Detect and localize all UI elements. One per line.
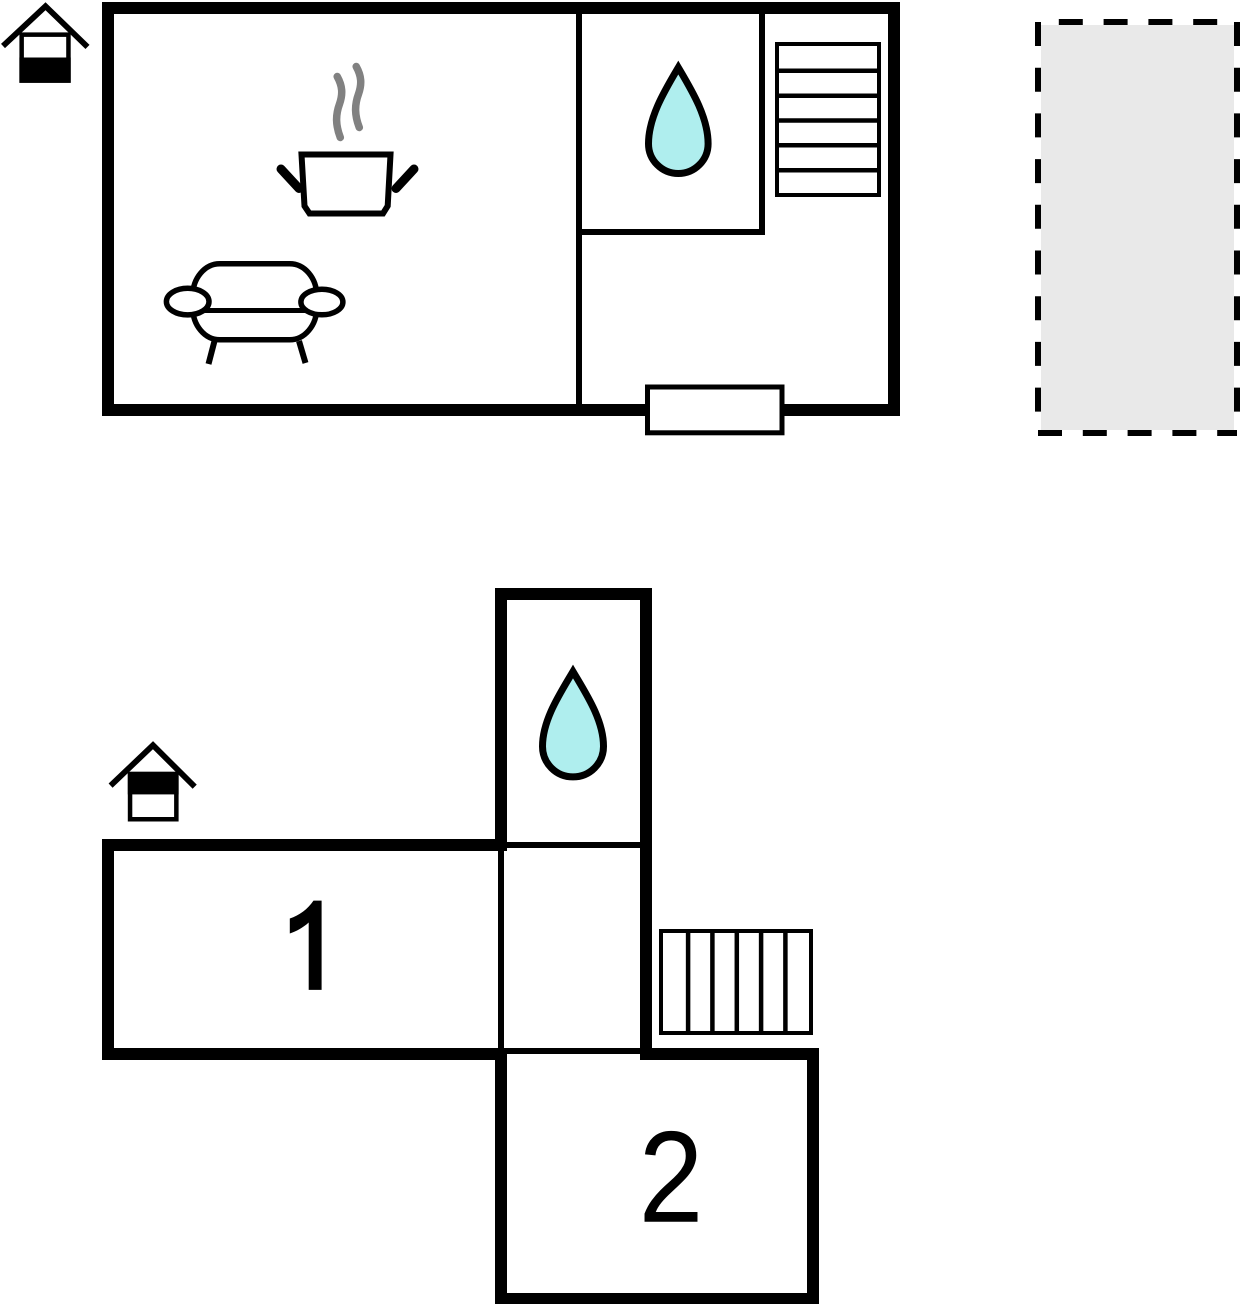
svg-text:2: 2: [639, 1105, 704, 1250]
